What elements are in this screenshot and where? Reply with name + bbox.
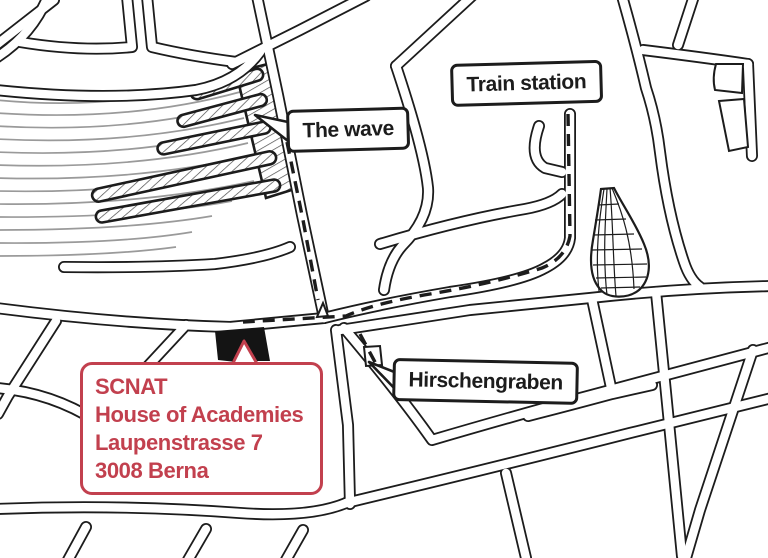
- label-train-station: Train station: [450, 60, 603, 107]
- scnat-location-map: The wave Train station Hirschengraben SC…: [0, 0, 768, 558]
- address-building: House of Academies: [95, 401, 308, 429]
- address-org: SCNAT: [95, 373, 308, 401]
- label-hirschengraben: Hirschengraben: [392, 358, 579, 405]
- address-card: SCNAT House of Academies Laupenstrasse 7…: [80, 362, 323, 495]
- address-city: 3008 Berna: [95, 457, 308, 485]
- address-street: Laupenstrasse 7: [95, 429, 308, 457]
- church-building: [591, 188, 649, 297]
- label-the-wave: The wave: [286, 107, 410, 153]
